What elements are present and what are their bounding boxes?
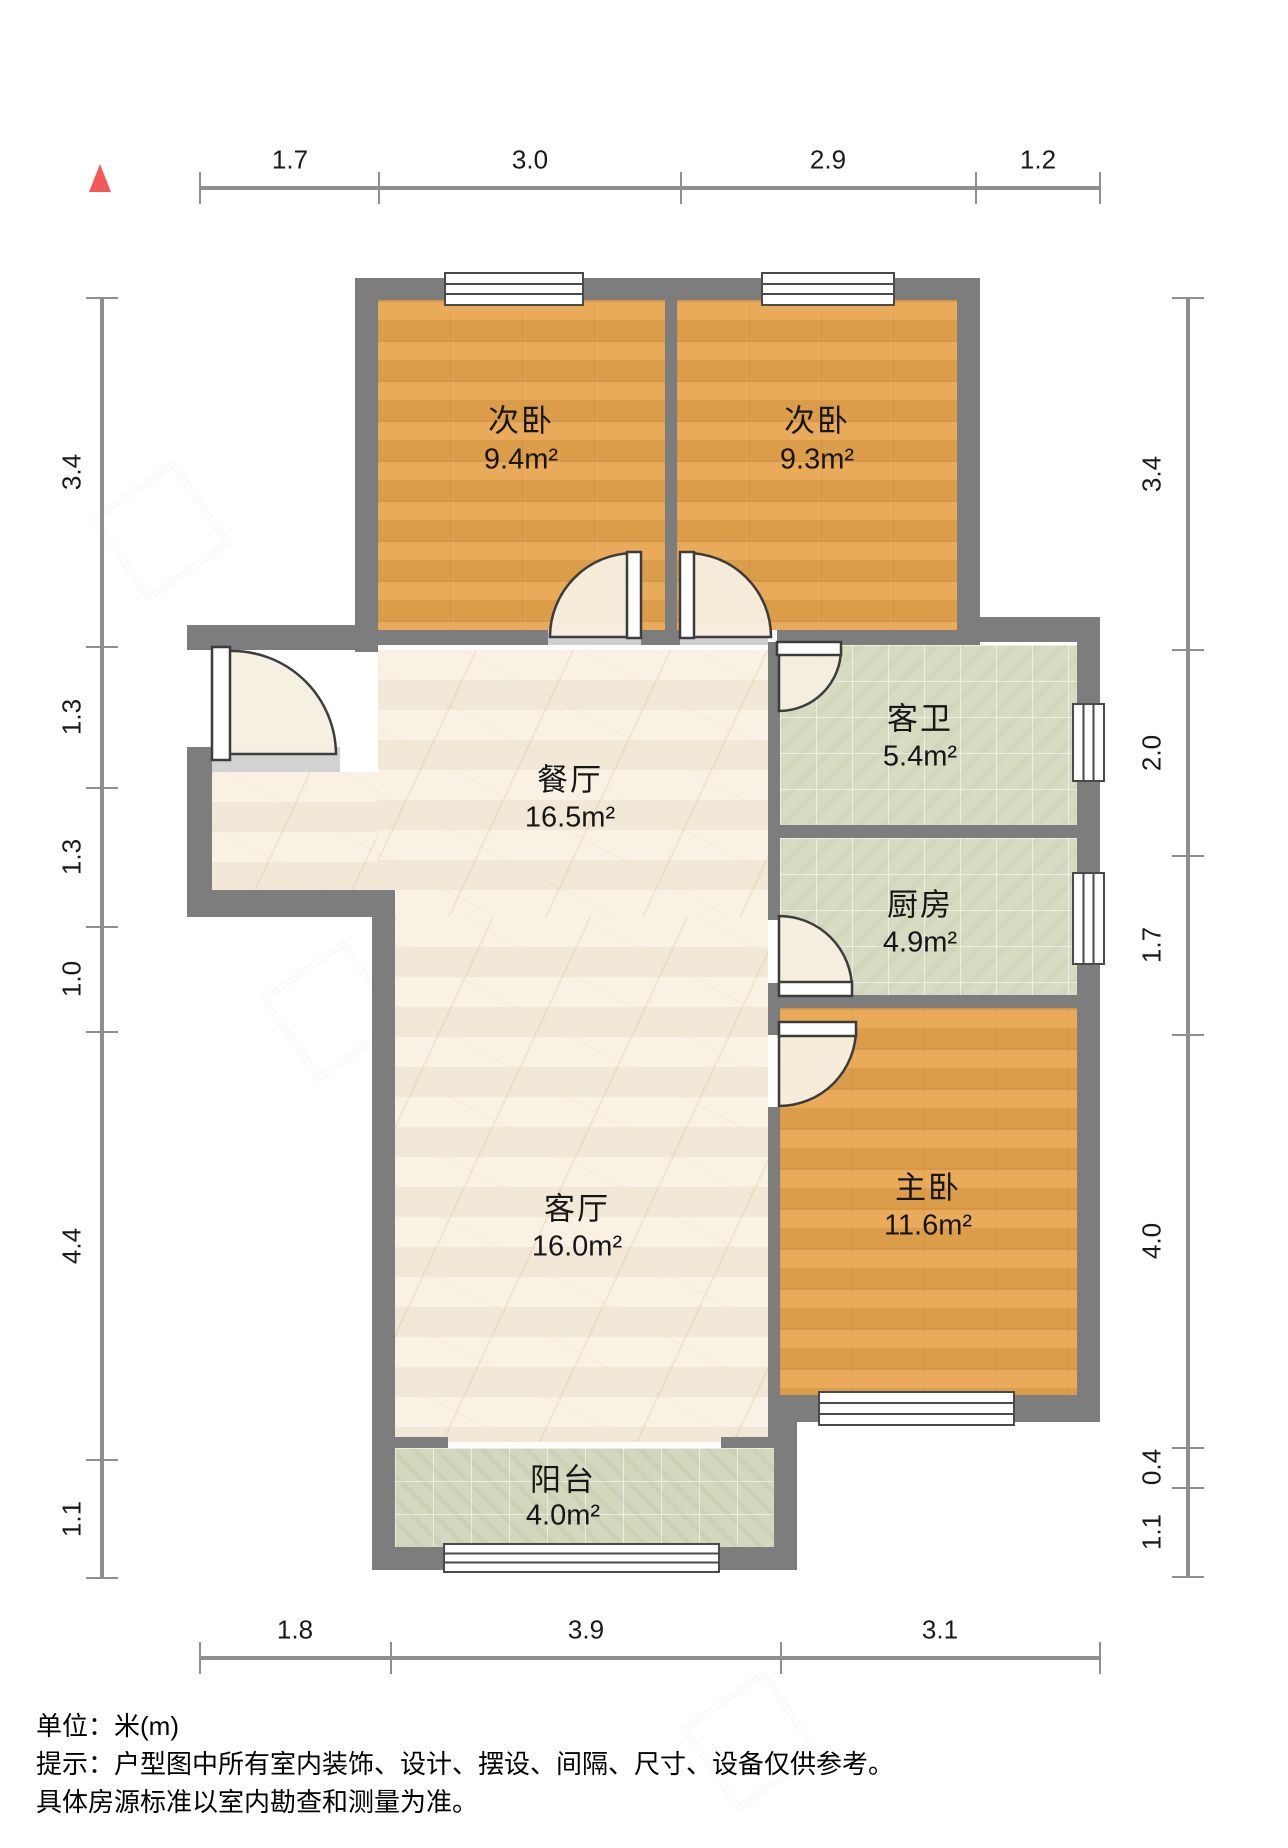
dim-tick (378, 172, 380, 204)
dim-tick (1172, 1034, 1204, 1036)
room-name-living: 客厅 (544, 1184, 610, 1229)
bedroom2-door-swing (687, 553, 771, 637)
dim-tick (86, 1577, 118, 1579)
dim-tick (780, 1642, 782, 1674)
room-area-kitchen: 4.9m² (883, 927, 957, 960)
unit-note: 单位：米(m) (36, 1706, 179, 1743)
dim-label: 2.0 (1137, 735, 1168, 771)
bedroom2-door-leaf (680, 552, 694, 638)
dim-label: 1.2 (1020, 145, 1056, 176)
dim-tick (86, 297, 118, 299)
bedroom1-door-swing (550, 553, 634, 637)
dim-label: 1.0 (57, 961, 88, 997)
dim-tick (1172, 1447, 1204, 1449)
dim-line-left (100, 298, 104, 1578)
room-area-bedroom-2: 9.3m² (780, 444, 854, 477)
dim-tick (86, 646, 118, 648)
dim-label: 1.1 (1137, 1514, 1168, 1550)
dim-tick (1172, 1487, 1204, 1489)
dim-tick (86, 1031, 118, 1033)
dim-line-top (200, 186, 1100, 190)
room-name-bathroom: 客卫 (887, 694, 953, 739)
dim-label: 4.0 (1137, 1223, 1168, 1259)
room-name-bedroom-1: 次卧 (488, 396, 554, 441)
dim-tick (1099, 1642, 1101, 1674)
dim-tick (1172, 855, 1204, 857)
dim-label: 1.1 (57, 1501, 88, 1537)
disclaimer-line-2: 具体房源标准以室内勘查和测量为准。 (36, 1782, 478, 1819)
doors-overlay (0, 0, 1288, 1848)
dim-label: 3.0 (512, 145, 548, 176)
dim-label: 3.1 (922, 1615, 958, 1646)
dim-label: 1.3 (57, 699, 88, 735)
dim-label: 3.4 (57, 454, 88, 490)
entry-door-swing (221, 651, 336, 754)
dim-label: 1.3 (57, 839, 88, 875)
room-area-living: 16.0m² (532, 1231, 622, 1264)
dim-tick (86, 1459, 118, 1461)
dim-tick (1172, 297, 1204, 299)
dim-label: 4.4 (57, 1228, 88, 1264)
room-name-balcony: 阳台 (530, 1455, 596, 1500)
kitchen-door-swing (779, 916, 852, 989)
room-area-bedroom-1: 9.4m² (484, 444, 558, 477)
dim-label: 3.4 (1137, 456, 1168, 492)
room-name-bedroom-2: 次卧 (784, 396, 850, 441)
dim-tick (86, 787, 118, 789)
master-door-leaf (779, 1022, 856, 1036)
disclaimer-line-1: 提示：户型图中所有室内装饰、设计、摆设、间隔、尺寸、设备仅供参考。 (36, 1744, 894, 1781)
dim-label: 2.9 (810, 145, 846, 176)
dim-tick (680, 172, 682, 204)
dim-tick (1172, 649, 1204, 651)
dim-tick (975, 172, 977, 204)
dim-tick (199, 172, 201, 204)
dim-tick (86, 926, 118, 928)
entry-door-leaf (212, 647, 230, 760)
dim-tick (1172, 1576, 1204, 1578)
room-name-master: 主卧 (895, 1163, 961, 1208)
dim-label: 1.7 (272, 145, 308, 176)
room-area-balcony: 4.0m² (526, 1500, 600, 1533)
room-area-bathroom: 5.4m² (883, 741, 957, 774)
master-door-swing (779, 1029, 856, 1106)
room-name-dining: 餐厅 (537, 755, 603, 800)
bedroom1-door-leaf (627, 552, 641, 638)
dim-label: 0.4 (1137, 1449, 1168, 1485)
floor-plan-canvas: 次卧 9.4m² 次卧 9.3m² 客卫 5.4m² 厨房 4.9m² 主卧 1… (0, 0, 1288, 1848)
dim-line-right (1186, 298, 1190, 1577)
dim-tick (1099, 172, 1101, 204)
dim-label: 1.8 (277, 1615, 313, 1646)
kitchen-door-leaf (779, 982, 852, 996)
room-name-kitchen: 厨房 (887, 880, 953, 925)
dim-tick (390, 1642, 392, 1674)
bathroom-door-leaf (777, 642, 841, 655)
bathroom-door-swing (779, 649, 841, 711)
dim-label: 3.9 (568, 1615, 604, 1646)
room-area-master: 11.6m² (884, 1210, 972, 1243)
dim-line-bottom (200, 1656, 1100, 1660)
room-area-dining: 16.5m² (525, 802, 615, 835)
dim-tick (199, 1642, 201, 1674)
dim-label: 1.7 (1137, 927, 1168, 963)
